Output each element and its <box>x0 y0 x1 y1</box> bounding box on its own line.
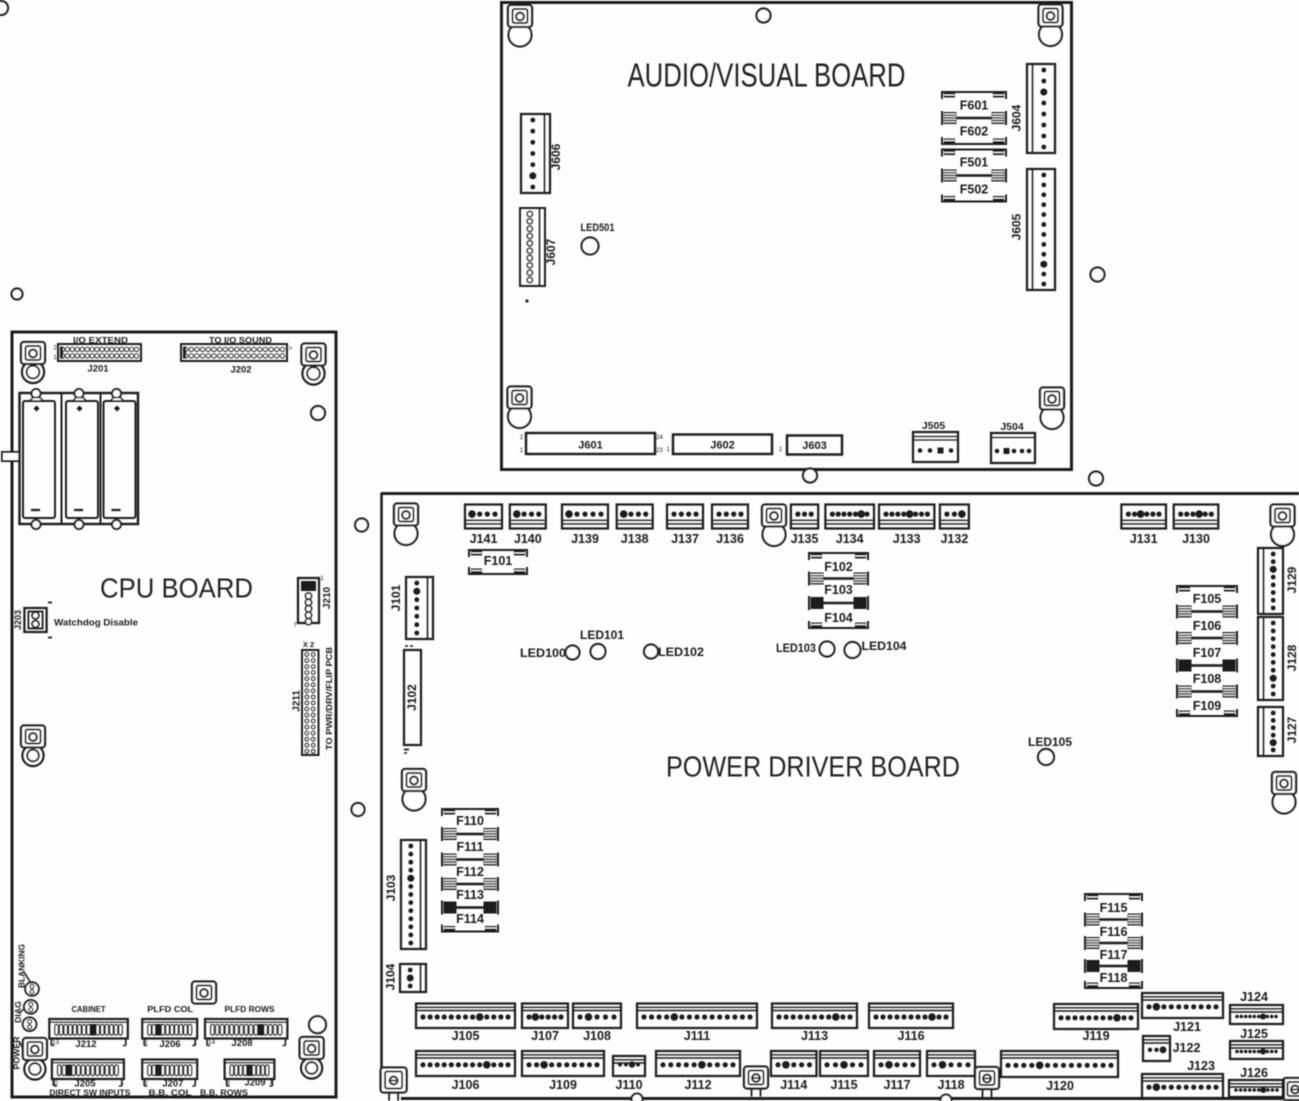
svg-text:J504: J504 <box>1000 421 1024 433</box>
svg-text:J132: J132 <box>940 532 968 546</box>
svg-text:LED102: LED102 <box>658 647 704 659</box>
svg-text:J211: J211 <box>292 690 303 712</box>
svg-text:J105: J105 <box>452 1029 480 1043</box>
svg-text:J141: J141 <box>470 532 498 546</box>
svg-text:14: 14 <box>208 1039 216 1046</box>
svg-text:Watchdog Disable: Watchdog Disable <box>54 618 138 628</box>
svg-text:J111: J111 <box>684 1029 710 1043</box>
svg-text:J101: J101 <box>389 584 403 611</box>
svg-text:J131: J131 <box>1130 532 1158 546</box>
svg-text:B.B. ROWS: B.B. ROWS <box>200 1088 248 1098</box>
svg-text:J119: J119 <box>1082 1029 1109 1043</box>
svg-text:BLANKING: BLANKING <box>18 944 27 988</box>
svg-text:J601: J601 <box>578 440 602 452</box>
svg-text:F112: F112 <box>456 865 484 879</box>
svg-text:J120: J120 <box>1046 1079 1074 1093</box>
svg-text:24: 24 <box>656 435 663 441</box>
svg-text:J134: J134 <box>836 532 864 546</box>
svg-text:J140: J140 <box>514 532 542 546</box>
svg-text:CABINET: CABINET <box>72 1004 107 1014</box>
svg-text:F118: F118 <box>1100 971 1128 985</box>
svg-text:J129: J129 <box>1285 566 1299 593</box>
svg-text:13: 13 <box>52 1039 60 1046</box>
svg-text:J116: J116 <box>897 1029 924 1043</box>
svg-text:J208: J208 <box>231 1038 252 1049</box>
svg-text:J118: J118 <box>937 1078 964 1092</box>
svg-text:J112: J112 <box>684 1078 711 1092</box>
svg-text:8: 8 <box>144 1080 148 1087</box>
svg-text:J604: J604 <box>1010 104 1024 131</box>
svg-text:F110: F110 <box>456 814 484 828</box>
svg-text:CPU BOARD: CPU BOARD <box>100 573 253 604</box>
svg-text:J114: J114 <box>780 1078 807 1092</box>
svg-text:J107: J107 <box>531 1029 559 1043</box>
svg-text:F105: F105 <box>1193 592 1222 606</box>
svg-text:J606: J606 <box>549 143 563 170</box>
svg-text:B.B. COL: B.B. COL <box>149 1088 192 1098</box>
svg-text:J104: J104 <box>384 963 398 990</box>
svg-text:12: 12 <box>51 1080 59 1087</box>
svg-text:TO PWR/DRV/FLIP PCB: TO PWR/DRV/FLIP PCB <box>324 647 334 750</box>
svg-text:J135: J135 <box>791 532 819 546</box>
svg-text:1: 1 <box>120 1079 124 1086</box>
svg-text:J137: J137 <box>671 532 699 546</box>
svg-text:J202: J202 <box>230 365 251 376</box>
svg-text:LED100: LED100 <box>520 648 566 660</box>
svg-text:J126: J126 <box>1240 1066 1268 1080</box>
svg-text:J110: J110 <box>615 1078 642 1092</box>
svg-text:F602: F602 <box>960 125 989 139</box>
svg-text:F116: F116 <box>1100 925 1128 939</box>
svg-text:LED103: LED103 <box>776 643 816 655</box>
svg-text:1: 1 <box>193 1039 197 1046</box>
svg-text:9: 9 <box>226 1080 230 1087</box>
svg-text:F113: F113 <box>456 888 484 902</box>
svg-text:>: > <box>289 346 293 352</box>
svg-text:J505: J505 <box>922 420 946 432</box>
svg-text:J121: J121 <box>1173 1020 1201 1034</box>
svg-text:J113: J113 <box>801 1029 828 1043</box>
svg-text:J212: J212 <box>75 1039 96 1050</box>
svg-text:LED501: LED501 <box>581 222 615 234</box>
svg-text:J210: J210 <box>322 586 333 609</box>
svg-text:F114: F114 <box>456 912 484 926</box>
svg-text:F104: F104 <box>824 611 853 625</box>
svg-text:8: 8 <box>144 1039 148 1046</box>
svg-text:F501: F501 <box>960 156 989 170</box>
svg-text:J206: J206 <box>159 1039 180 1050</box>
svg-text:J203: J203 <box>13 610 23 630</box>
svg-text:DIRECT SW INPUTS: DIRECT SW INPUTS <box>49 1088 130 1098</box>
svg-text:J115: J115 <box>830 1078 857 1092</box>
svg-text:F107: F107 <box>1193 646 1222 660</box>
svg-text:F117: F117 <box>1100 948 1128 962</box>
svg-text:F109: F109 <box>1193 699 1222 713</box>
svg-text:LED101: LED101 <box>580 630 625 642</box>
svg-text:F601: F601 <box>960 99 989 113</box>
svg-text:J122: J122 <box>1173 1041 1201 1055</box>
svg-text:LED105: LED105 <box>1028 737 1073 749</box>
svg-text:J117: J117 <box>883 1078 910 1092</box>
svg-text:J605: J605 <box>1010 213 1024 240</box>
svg-text:1: 1 <box>269 1079 273 1086</box>
svg-text:J138: J138 <box>621 532 649 546</box>
svg-text:J128: J128 <box>1285 644 1299 671</box>
svg-text:J607: J607 <box>544 238 558 265</box>
svg-text:J108: J108 <box>583 1029 611 1043</box>
svg-text:POWER DRIVER BOARD: POWER DRIVER BOARD <box>666 752 960 784</box>
svg-text:J133: J133 <box>893 532 921 546</box>
svg-text:J102: J102 <box>405 684 419 711</box>
svg-text:J127: J127 <box>1285 716 1299 743</box>
svg-text:J602: J602 <box>710 440 734 452</box>
svg-text:F502: F502 <box>960 183 989 197</box>
svg-text:F106: F106 <box>1193 619 1222 633</box>
svg-text:F101: F101 <box>484 554 513 568</box>
svg-text:23: 23 <box>656 448 663 454</box>
svg-text:AUDIO/VISUAL BOARD: AUDIO/VISUAL BOARD <box>628 57 906 94</box>
svg-text:J124: J124 <box>1240 990 1268 1004</box>
svg-text:J136: J136 <box>716 532 744 546</box>
svg-text:J109: J109 <box>549 1078 577 1092</box>
svg-text:J130: J130 <box>1182 532 1210 546</box>
svg-text:J201: J201 <box>87 364 109 375</box>
svg-text:J139: J139 <box>571 532 599 546</box>
svg-text:J106: J106 <box>452 1078 480 1092</box>
svg-text:F102: F102 <box>824 560 853 574</box>
svg-text:J603: J603 <box>802 440 826 452</box>
svg-text:F103: F103 <box>824 583 853 597</box>
svg-text:J123: J123 <box>1187 1059 1215 1073</box>
svg-text:F115: F115 <box>1100 901 1128 915</box>
svg-text:J103: J103 <box>384 874 398 901</box>
svg-text:J125: J125 <box>1240 1027 1268 1041</box>
svg-text:LED104: LED104 <box>862 641 908 653</box>
svg-text:F111: F111 <box>456 840 483 854</box>
svg-text:PLFD COL: PLFD COL <box>147 1004 193 1014</box>
svg-text:X 2: X 2 <box>303 640 314 649</box>
svg-text:POWER: POWER <box>13 1036 22 1069</box>
svg-text:PLFD ROWS: PLFD ROWS <box>225 1004 275 1014</box>
svg-text:F108: F108 <box>1193 672 1222 686</box>
